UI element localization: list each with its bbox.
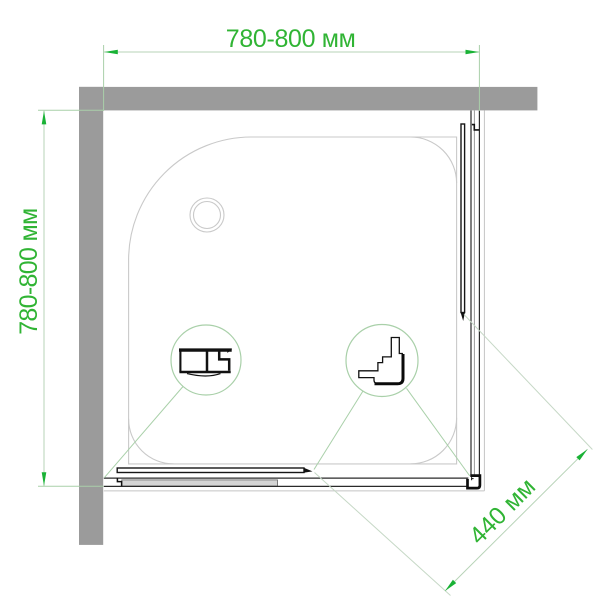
svg-text:780-800 мм: 780-800 мм xyxy=(226,25,356,53)
svg-text:780-800 мм: 780-800 мм xyxy=(15,208,43,335)
